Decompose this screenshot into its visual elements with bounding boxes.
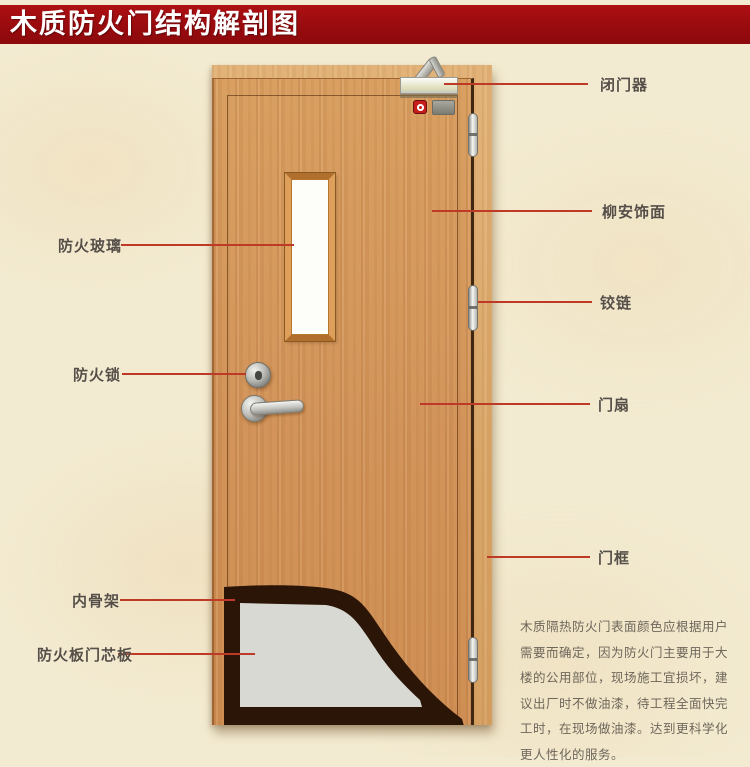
label-fire-board-core: 防火板门芯板	[37, 646, 133, 664]
page-title: 木质防火门结构解剖图	[0, 11, 300, 38]
description-line: 木质隔热防火门表面颜色应根据用户	[520, 614, 730, 640]
description-text: 木质隔热防火门表面颜色应根据用户 需要而确定，因为防火门主要用于大 楼的公用部位…	[520, 614, 730, 767]
label-door-frame: 门框	[598, 549, 630, 567]
label-lauan-veneer: 柳安饰面	[602, 203, 666, 221]
leader-line-fire-glass	[121, 244, 294, 246]
leader-line-lauan-veneer	[432, 210, 592, 212]
leader-line-door-leaf	[420, 403, 590, 405]
fire-seal-badge	[413, 100, 427, 114]
label-door-closer: 闭门器	[600, 76, 648, 94]
door-frame	[212, 65, 492, 725]
hinge-top	[468, 113, 478, 157]
label-hinge: 铰链	[600, 294, 632, 312]
leader-line-door-frame	[487, 556, 590, 558]
leader-line-fire-board-core	[118, 653, 255, 655]
hinge-middle	[468, 285, 478, 331]
door-closer	[400, 77, 458, 94]
description-line: 工时，在现场做油漆。达到更科学化	[520, 716, 730, 742]
title-banner: 木质防火门结构解剖图	[0, 5, 750, 44]
leader-line-hinge	[478, 301, 592, 303]
description-line: 议出厂时不做油漆，待工程全面快完	[520, 691, 730, 717]
label-inner-skeleton: 内骨架	[72, 592, 120, 610]
fire-lock-cylinder	[245, 362, 271, 388]
description-line: 楼的公用部位，现场施工宜损坏，建	[520, 665, 730, 691]
label-door-leaf: 门扇	[598, 396, 630, 414]
leader-line-fire-lock	[122, 373, 246, 375]
label-fire-glass: 防火玻璃	[58, 237, 122, 255]
label-fire-lock: 防火锁	[73, 366, 121, 384]
description-line: 需要而确定，因为防火门主要用于大	[520, 640, 730, 666]
fire-glass-window	[285, 173, 335, 341]
leader-line-inner-skeleton	[120, 599, 235, 601]
door-leaf	[212, 78, 474, 725]
hinge-bottom	[468, 637, 478, 683]
leader-line-door-closer	[444, 83, 588, 85]
certification-plate	[432, 100, 455, 115]
cutaway-section	[214, 579, 474, 725]
description-line: 更人性化的服务。	[520, 742, 730, 767]
